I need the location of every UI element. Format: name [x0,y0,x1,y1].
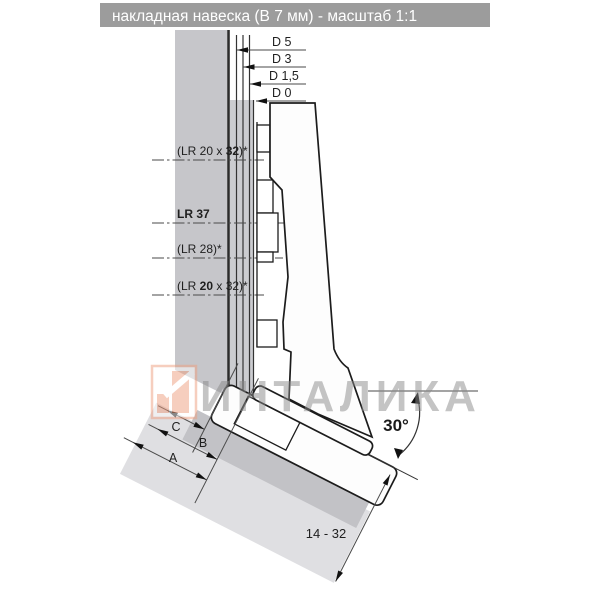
dim-label-d3: D 3 [272,52,292,66]
mounting-plate-bottom-block [257,320,277,347]
dim-label-d0: D 0 [272,86,292,100]
arrow-left-icon [250,81,261,86]
watermark: ИНТАЛИКА [152,366,481,421]
top-dimensions: D 5 D 3 D 1,5 D 0 [237,35,306,104]
mounting-plate-block [257,213,278,252]
dim-label-d15: D 1,5 [269,69,299,83]
lr-label-2: LR 37 [177,207,210,221]
lr-label-3: (LR 28)* [177,242,222,256]
page-title: накладная навеска (В 7 мм) - масштаб 1:1 [112,8,417,25]
intalika-logo-icon [152,366,196,418]
dim-label-a: A [169,451,178,465]
mounting-plate-block [257,180,273,213]
watermark-text: ИНТАЛИКА [200,372,481,421]
dim-label-range: 14 - 32 [306,526,346,541]
mounting-plate-block [257,252,273,262]
dim-label-c: C [171,420,180,434]
mounting-plate-top-block [257,125,270,152]
dim-label-d5: D 5 [272,35,292,49]
dim-label-b: B [199,436,207,450]
hinge-technical-diagram: накладная навеска (В 7 мм) - масштаб 1:1… [0,0,600,600]
title-bar: накладная навеска (В 7 мм) - масштаб 1:1 [100,3,490,27]
arrow-left-icon [256,98,267,103]
lr-label-1: (LR 20 x 32)* [177,144,248,158]
lr-label-4: (LR 20 x 32)* [177,279,248,293]
door-position-lines [230,35,254,404]
